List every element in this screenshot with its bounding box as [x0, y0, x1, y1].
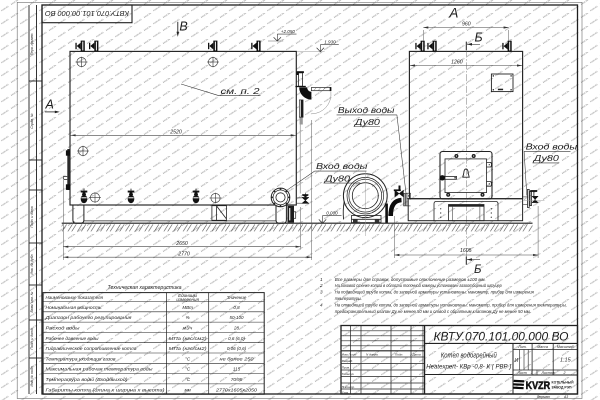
svg-text:1: 1	[320, 277, 323, 282]
svg-text:°С: °С	[185, 367, 191, 372]
svg-text:KVZR: KVZR	[526, 380, 551, 392]
svg-text:0.000: 0.000	[326, 211, 338, 216]
svg-text:МПа (кгс/см2): МПа (кгс/см2)	[169, 346, 208, 351]
svg-text:А: А	[45, 97, 54, 111]
svg-text:Максимальная рабочая температу: Максимальная рабочая температура воды	[46, 367, 154, 372]
svg-text:Наименование показателя: Наименование показателя	[46, 295, 104, 300]
svg-text:Т.контр.: Т.контр.	[342, 372, 355, 376]
svg-text:Подп. и дата: Подп. и дата	[30, 328, 34, 349]
svg-text:2: 2	[563, 371, 566, 375]
svg-text:Выход воды: Выход воды	[338, 106, 395, 115]
svg-text:+2.050: +2.050	[281, 29, 296, 34]
svg-text:°С: °С	[185, 356, 191, 361]
svg-text:На подводящей трубе котла, до: На подводящей трубе котла, до запорной а…	[335, 289, 534, 295]
svg-text:2770: 2770	[177, 251, 190, 257]
svg-text:КОТЕЛЬНЫЙ: КОТЕЛЬНЫЙ	[552, 381, 575, 385]
svg-text:И: И	[514, 358, 518, 364]
svg-text:3: 3	[320, 290, 323, 295]
svg-text:4: 4	[320, 303, 323, 308]
svg-text:Листов: Листов	[541, 371, 555, 375]
svg-text:2520: 2520	[169, 129, 182, 135]
svg-text:КВТУ.070.101.00.000 ВО: КВТУ.070.101.00.000 ВО	[434, 329, 569, 343]
svg-text:Утв.: Утв.	[342, 390, 349, 394]
svg-text:Котел водогрейный: Котел водогрейный	[441, 352, 497, 360]
svg-text:Расход воды: Расход воды	[46, 326, 81, 331]
svg-text:N докум.: N докум.	[366, 352, 379, 356]
svg-text:На боковой стенке котла в обла: На боковой стенке котла в области топочн…	[335, 282, 502, 288]
svg-text:115: 115	[233, 367, 241, 372]
svg-text:мм: мм	[185, 387, 191, 392]
svg-text:960: 960	[462, 22, 471, 28]
svg-text:МПа (кгс/см2): МПа (кгс/см2)	[169, 336, 208, 341]
svg-text:Все размеры для справок, допус: Все размеры для справок, допустимые откл…	[335, 277, 486, 282]
svg-text:Ду80: Ду80	[324, 174, 351, 183]
svg-text:Техническая характеристика: Техническая характеристика	[108, 285, 182, 291]
svg-text:ЗАВОД РЭП: ЗАВОД РЭП	[552, 385, 573, 389]
svg-text:0,6 (6,0): 0,6 (6,0)	[228, 336, 245, 341]
svg-text:0,06 (0,6): 0,06 (0,6)	[227, 346, 247, 351]
svg-text:Справ. №: Справ. №	[30, 113, 34, 129]
svg-text:Ду80: Ду80	[354, 118, 381, 127]
svg-text:Ду80: Ду80	[532, 154, 559, 163]
svg-text:Вход воды: Вход воды	[526, 142, 578, 151]
svg-text:28: 28	[233, 326, 240, 331]
svg-text:Дата: Дата	[412, 352, 421, 356]
svg-text:°С: °С	[185, 377, 191, 382]
svg-text:70/95: 70/95	[231, 377, 243, 382]
svg-text:1: 1	[531, 371, 533, 375]
svg-text:Диапазон рабочего регулировани: Диапазон рабочего регулирования	[44, 315, 132, 320]
svg-text:А3: А3	[563, 395, 568, 399]
svg-text:2650: 2650	[175, 241, 188, 247]
svg-text:50-100: 50-100	[229, 315, 244, 320]
svg-text:КВТУ.070.101.00.000 ВО: КВТУ.070.101.00.000 ВО	[44, 9, 129, 16]
svg-text:МВт: МВт	[182, 305, 193, 310]
svg-text:В: В	[179, 20, 187, 34]
svg-text:1605: 1605	[460, 248, 472, 254]
svg-text:Формат: Формат	[537, 395, 551, 399]
svg-text:не более 250: не более 250	[220, 356, 255, 361]
svg-text:Гидравлическое сопротивление к: Гидравлическое сопротивление котла	[46, 346, 138, 351]
svg-text:предохранительный клапан Ду не: предохранительный клапан Ду не менее 50 …	[335, 308, 531, 314]
svg-text:Перв. примен.: Перв. примен.	[30, 33, 34, 56]
svg-text:Подп. и дата: Подп. и дата	[30, 206, 34, 227]
svg-text:2: 2	[319, 283, 323, 288]
svg-text:0,8: 0,8	[233, 305, 240, 310]
svg-text:Номинальная мощность: Номинальная мощность	[46, 305, 103, 310]
svg-text:Значение: Значение	[227, 295, 247, 300]
svg-text:Изм.Лист: Изм.Лист	[342, 352, 357, 356]
svg-text:температуры.: температуры.	[335, 296, 362, 301]
svg-text:%: %	[186, 315, 190, 320]
svg-text:Пров.: Пров.	[342, 365, 350, 369]
svg-text:Габариты котла (длина х ширина: Габариты котла (длина х ширина х высота)	[46, 387, 166, 392]
svg-text:Рабочее давление воды: Рабочее давление воды	[46, 336, 100, 341]
svg-text:Heatexpert- КВр -0,8- К ( РВР: Heatexpert- КВр -0,8- К ( РВР )	[426, 364, 511, 371]
svg-text:Температура уходящих газов: Температура уходящих газов	[46, 356, 117, 361]
svg-text:Подп.: Подп.	[395, 352, 403, 356]
svg-text:Разраб.: Разраб.	[342, 359, 353, 363]
svg-text:Температура воды (Вход/выход): Температура воды (Вход/выход)	[46, 377, 129, 382]
svg-text:Лист: Лист	[517, 371, 527, 375]
svg-text:1.930: 1.930	[324, 40, 336, 45]
svg-text:Взам. инв. №: Взам. инв. №	[30, 291, 34, 312]
svg-text:Лит.: Лит.	[517, 345, 526, 349]
svg-text:Б: Б	[474, 264, 482, 276]
svg-text:А: А	[448, 6, 458, 21]
svg-text:Б: Б	[475, 30, 483, 44]
svg-text:см. п. 2: см. п. 2	[221, 87, 261, 96]
svg-text:измерения: измерения	[176, 297, 199, 302]
svg-text:Н.контр.: Н.контр.	[342, 385, 355, 389]
svg-text:Инв. № дубл.: Инв. № дубл.	[30, 254, 34, 275]
svg-text:Масштаб: Масштаб	[557, 345, 575, 349]
svg-text:Инв. № подл.: Инв. № подл.	[30, 365, 34, 386]
svg-text:1:15: 1:15	[560, 358, 572, 364]
svg-text:На отводящей трубе котла, до з: На отводящей трубе котла, до запорной ар…	[335, 302, 567, 308]
svg-text:м3/ч: м3/ч	[183, 326, 193, 331]
svg-text:Масса: Масса	[537, 345, 548, 349]
svg-text:2770х1605х2050: 2770х1605х2050	[215, 387, 258, 392]
svg-text:Вход воды: Вход воды	[316, 162, 368, 171]
svg-text:1260: 1260	[451, 60, 463, 66]
